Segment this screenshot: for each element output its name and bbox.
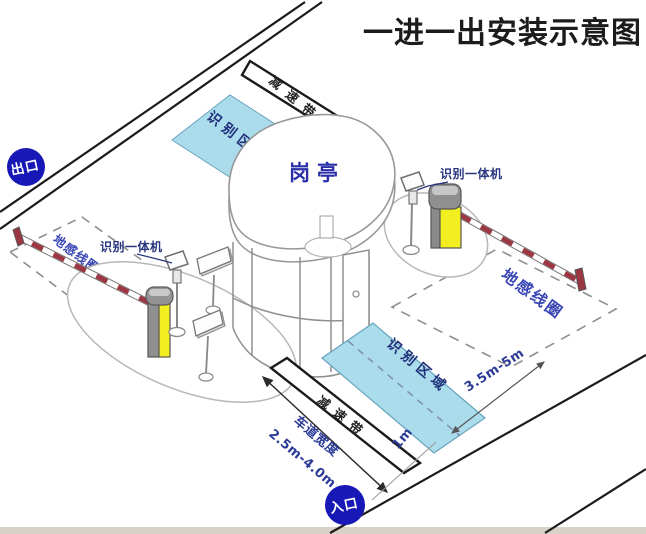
barrier-gate-entry-body <box>440 207 461 248</box>
barrier-gate-exit-cap-top <box>149 289 170 296</box>
barrier-gate-exit <box>146 287 173 357</box>
exit-badge: 出口 <box>7 148 45 186</box>
booth-label: 岗亭 <box>289 161 345 185</box>
diagram-title: 一进一出安装示意图 <box>363 16 642 51</box>
display-board-1-pole <box>213 275 214 307</box>
camera-exit-bracket <box>173 270 181 283</box>
booth-interior-monitor <box>320 216 333 238</box>
barrier-gate-exit-body <box>159 302 170 357</box>
camera-entry-bracket <box>409 191 417 204</box>
camera-entry-base <box>403 246 419 255</box>
entrance-badge: 入口 <box>325 485 365 525</box>
camera-entry-label: 识别一体机 <box>440 166 503 181</box>
barrier-gate-entry-body-side <box>431 207 440 248</box>
barrier-gate-exit-body-side <box>148 302 160 357</box>
diagram-canvas: 减速带 识别区域 地感线圈 地感线圈 <box>0 0 646 534</box>
camera-exit-base <box>169 328 185 337</box>
installation-diagram: 减速带 识别区域 地感线圈 地感线圈 <box>0 0 646 534</box>
barrier-gate-entry-cap-top <box>432 186 458 195</box>
camera-exit-label: 识别一体机 <box>100 239 163 254</box>
barrier-gate-entry <box>429 184 461 248</box>
camera-entry-pole <box>411 203 412 247</box>
display-board-2-base <box>199 373 213 381</box>
booth-interior-desk <box>305 237 351 257</box>
